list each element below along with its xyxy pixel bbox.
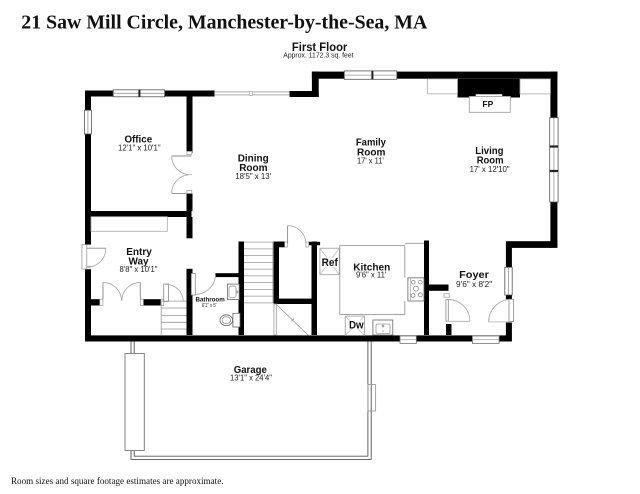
svg-text:12'1" x 10'1": 12'1" x 10'1" bbox=[118, 143, 161, 153]
svg-text:9'6" x 11': 9'6" x 11' bbox=[356, 270, 387, 280]
svg-text:Ref: Ref bbox=[322, 257, 338, 269]
svg-text:Dw: Dw bbox=[349, 320, 364, 332]
svg-text:9'6" x 8'2": 9'6" x 8'2" bbox=[456, 279, 492, 289]
svg-text:Approx. 1172.3 sq. feet: Approx. 1172.3 sq. feet bbox=[283, 51, 353, 60]
svg-text:6'1" x 5': 6'1" x 5' bbox=[202, 303, 217, 309]
svg-text:8'8" x 10'1": 8'8" x 10'1" bbox=[120, 264, 158, 274]
svg-text:17' x 11': 17' x 11' bbox=[357, 156, 384, 166]
svg-text:17' x 12'10": 17' x 12'10" bbox=[470, 164, 510, 174]
svg-text:13'1" x 24'4": 13'1" x 24'4" bbox=[230, 372, 272, 382]
svg-text:FP: FP bbox=[482, 99, 493, 109]
svg-text:21 Saw Mill Circle, Manchester: 21 Saw Mill Circle, Manchester-by-the-Se… bbox=[21, 12, 428, 34]
svg-text:18'5" x 13': 18'5" x 13' bbox=[235, 171, 271, 181]
svg-text:Room sizes and square footage: Room sizes and square footage estimates … bbox=[11, 476, 224, 487]
